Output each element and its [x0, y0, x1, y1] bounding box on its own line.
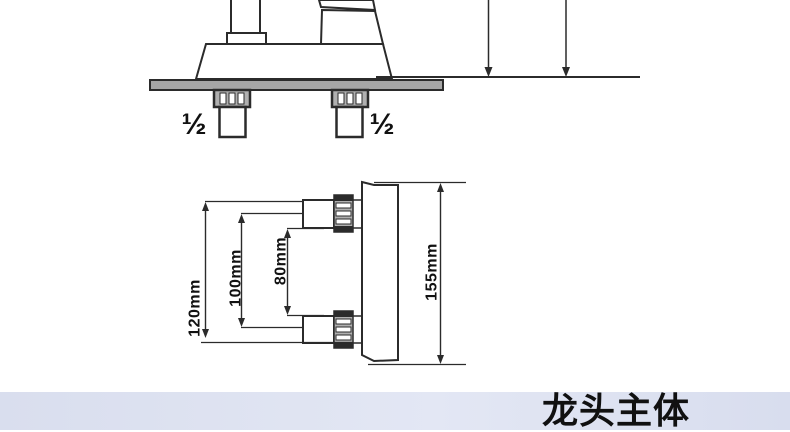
nut-rib	[347, 93, 353, 104]
up-arrowhead-icon	[238, 214, 245, 223]
up-arrowhead-icon	[437, 183, 444, 192]
dim-label-80mm: 80mm	[273, 237, 290, 285]
section-banner: 龙头主体	[0, 392, 790, 430]
nut-rib	[336, 219, 351, 224]
faucet-technical-drawing: ½ ½	[0, 0, 790, 392]
dim-label-120mm: 120mm	[187, 279, 204, 337]
nut-rib	[356, 93, 362, 104]
handle-upper	[319, 0, 375, 10]
bottom-inlet-pipe	[303, 316, 334, 343]
top-inlet-pipe	[303, 200, 334, 228]
mounting-deck-plate	[150, 80, 443, 90]
nut-rib	[336, 319, 351, 324]
up-arrowhead-icon	[284, 229, 291, 238]
nut-rib	[336, 335, 351, 340]
left-inlet	[214, 90, 250, 137]
spout-pipe	[227, 0, 266, 44]
faucet-front-view: ½ ½	[150, 0, 640, 141]
spout-collar	[227, 33, 266, 44]
nut-band	[334, 195, 353, 201]
product-detail-image: { "front_view": { "left_inlet_size": "½"…	[0, 0, 790, 430]
nut-band	[334, 226, 353, 232]
top-inlet-side	[303, 195, 362, 232]
left-inlet-size-label: ½	[181, 108, 206, 141]
up-arrowhead-icon	[202, 202, 209, 211]
nut-rib	[338, 93, 344, 104]
down-arrowhead-icon	[284, 306, 291, 315]
nut-rib	[220, 93, 226, 104]
right-inlet	[332, 90, 368, 137]
down-arrowhead-icon	[485, 67, 493, 77]
section-title: 龙头主体	[542, 394, 690, 430]
handle-base	[321, 10, 383, 44]
left-inlet-pipe	[220, 107, 246, 137]
nut-rib	[336, 203, 351, 208]
nut-rib	[336, 211, 351, 216]
faucet-body-side	[362, 182, 398, 361]
nut-band	[334, 311, 353, 317]
down-arrowhead-icon	[562, 67, 570, 77]
handle	[319, 0, 383, 44]
down-arrowhead-icon	[238, 318, 245, 327]
down-arrowhead-icon	[437, 355, 444, 364]
nut-rib	[238, 93, 244, 104]
height-leader-arrows	[485, 0, 571, 77]
right-inlet-pipe	[337, 107, 363, 137]
nut-rib	[229, 93, 235, 104]
dim-label-155mm: 155mm	[424, 243, 441, 301]
right-inlet-size-label: ½	[369, 108, 394, 141]
faucet-body-front	[196, 44, 392, 79]
faucet-dimension-view: 120mm 100mm 80mm 155mm	[187, 182, 466, 365]
dim-label-100mm: 100mm	[228, 249, 245, 307]
nut-rib	[336, 327, 351, 332]
